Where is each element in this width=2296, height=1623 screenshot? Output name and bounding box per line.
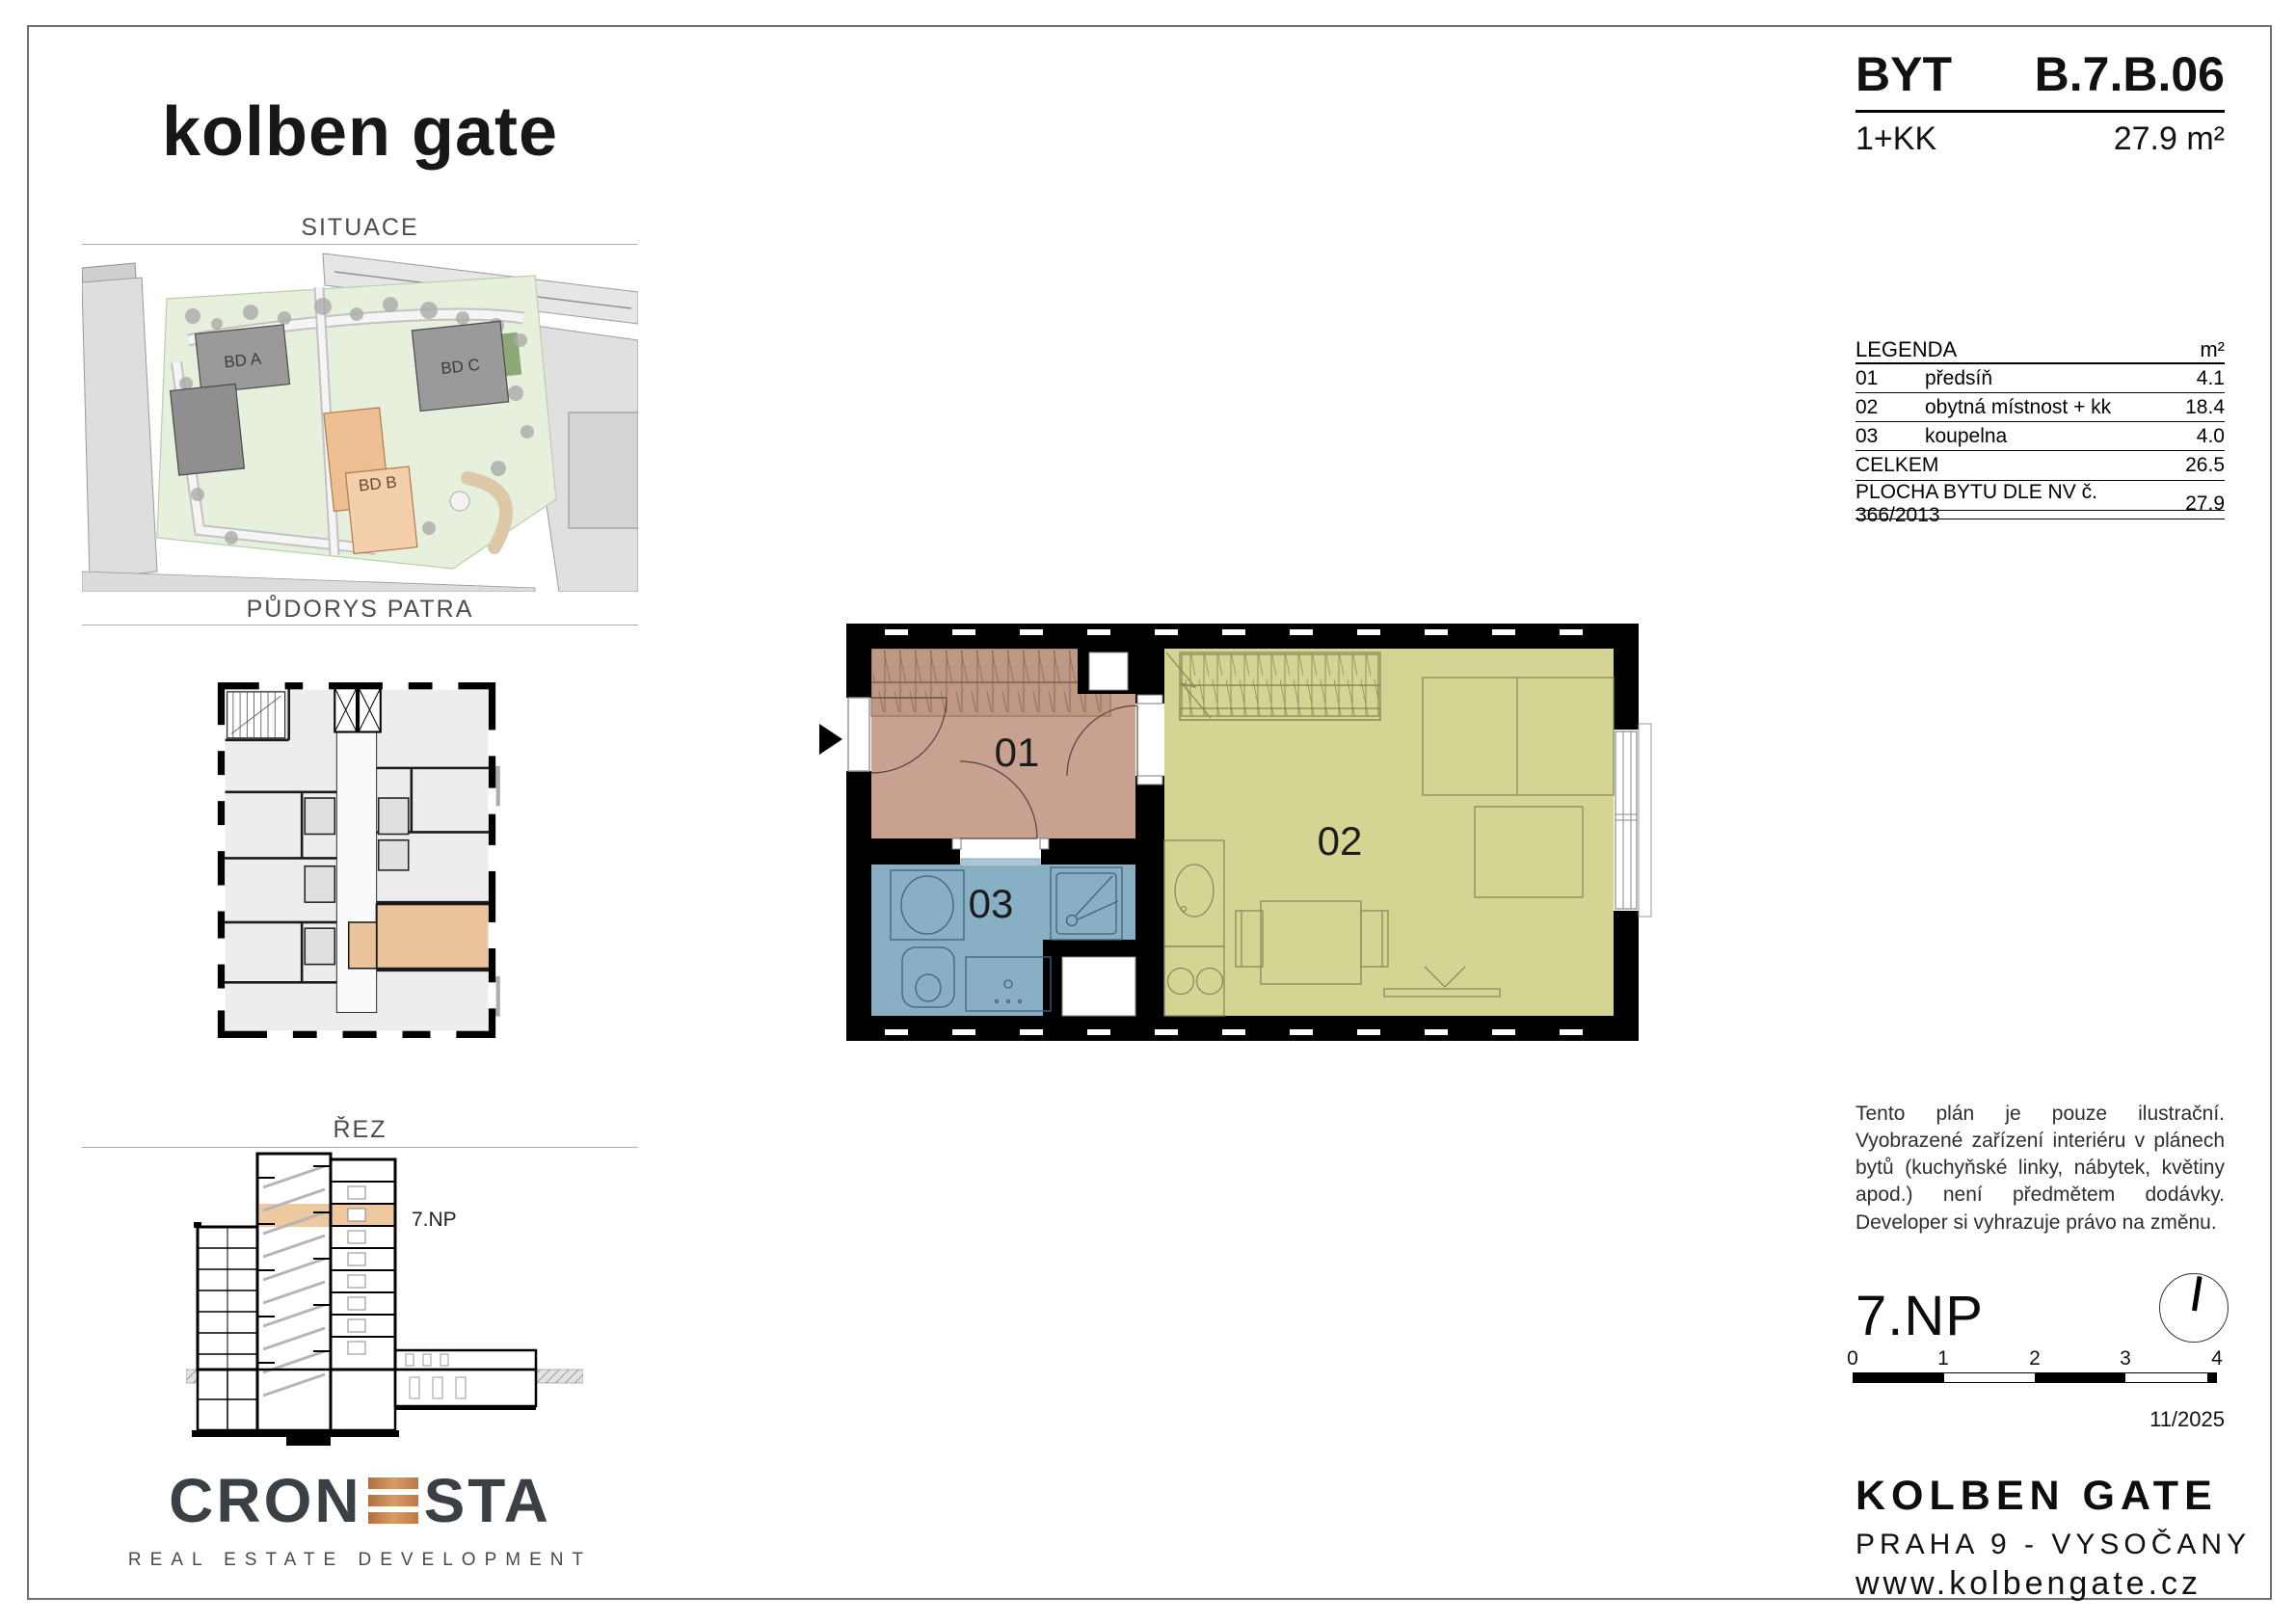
building-bd-a-annex [171, 384, 245, 475]
shaft-bathroom [1062, 957, 1135, 1016]
footer-location: PRAHA 9 - VYSOČANY [1855, 1529, 2225, 1561]
legend-table: LEGENDA m² 01 předsíň 4.1 02 obytná míst… [1855, 333, 2225, 519]
window-right [1615, 724, 1651, 917]
legend-statutory-area: 27.9 [2185, 492, 2225, 516]
scale-bar-numbers: 0 1 2 3 4 [1853, 1347, 2217, 1370]
entrance-arrow-icon [819, 724, 842, 755]
scale-tick: 1 [1937, 1347, 1949, 1370]
scale-tick: 2 [2029, 1347, 2041, 1370]
section-stairs-zigzag [263, 1166, 325, 1396]
legend-total-label: CELKEM [1855, 454, 2185, 477]
compass-needle [2192, 1276, 2203, 1311]
legend-total-area: 26.5 [2185, 454, 2225, 477]
section-annex [395, 1350, 536, 1370]
rez-title: ŘEZ [82, 1116, 638, 1144]
title-row: BYT B.7.B.06 [1855, 46, 2225, 113]
site-pool [450, 492, 469, 511]
site-plan-drawing: BD A BD C BD B [82, 249, 638, 592]
unit-area: 27.9 m² [2114, 120, 2225, 158]
apartment-plan-drawing: 01 02 03 [814, 622, 1671, 1042]
cronesta-text-left: CRON [169, 1465, 361, 1536]
legend-header: LEGENDA m² [1855, 333, 2225, 364]
legend-row-area: 4.1 [2197, 367, 2225, 390]
highlighted-unit-bath [349, 922, 377, 969]
byt-label: BYT [1855, 46, 1952, 102]
room-02-label: 02 [1318, 818, 1363, 864]
legend-statutory-label: PLOCHA BYTU DLE NV č. 366/2013 [1855, 481, 2185, 527]
cronesta-wordmark: CRON STA [82, 1465, 638, 1536]
window-sill [1639, 724, 1651, 917]
bathroom-threshold [961, 859, 1040, 866]
floor-elevators [334, 688, 381, 732]
legend-statutory-row: PLOCHA BYTU DLE NV č. 366/2013 27.9 [1855, 481, 2225, 511]
ground-right [536, 1370, 583, 1383]
shaft-top [1089, 652, 1128, 690]
footer-project-name: KOLBEN GATE [1855, 1473, 2225, 1520]
title-block: BYT B.7.B.06 1+KK 27.9 m² [1855, 46, 2225, 158]
legend-title: LEGENDA [1855, 337, 2200, 362]
section-lift-pit [286, 1437, 331, 1446]
footer-block: KOLBEN GATE PRAHA 9 - VYSOČANY www.kolbe… [1855, 1473, 2225, 1603]
situace-rule [82, 244, 638, 245]
section-drawing: 7.NP [186, 1151, 583, 1453]
cronesta-e-bars-icon [368, 1477, 418, 1524]
section-annex-slab [395, 1406, 536, 1410]
entrance-door-opening [848, 698, 869, 771]
floor-overview-drawing [207, 670, 506, 1051]
section-left-floors [198, 1227, 257, 1370]
pudorys-rule [82, 625, 638, 625]
legend-row-name: předsíň [1925, 367, 2197, 390]
legend-total-row: CELKEM 26.5 [1855, 451, 2225, 481]
legend-row-area: 4.0 [2197, 425, 2225, 448]
hallway-wardrobe [871, 649, 1110, 716]
scale-tick: 0 [1847, 1347, 1858, 1370]
cronesta-tagline: REAL ESTATE DEVELOPMENT [82, 1550, 638, 1571]
section-stair-landings [257, 1166, 331, 1363]
room-01-label: 01 [995, 730, 1040, 775]
plan-sheet: kolben gate SITUACE [0, 0, 2296, 1623]
living-closet [1166, 652, 1380, 720]
ground-left [186, 1370, 198, 1383]
scale-bar: 0 1 2 3 4 [1853, 1347, 2217, 1383]
disposition: 1+KK [1855, 120, 1936, 158]
legend-row-num: 01 [1855, 367, 1925, 390]
section-parapet [194, 1222, 201, 1228]
cronesta-logo: CRON STA REAL ESTATE DEVELOPMENT [82, 1465, 638, 1571]
disclaimer-text: Tento plán je pouze ilustrační. Vyobraze… [1855, 1101, 2225, 1237]
legend-row: 03 koupelna 4.0 [1855, 422, 2225, 451]
legend-row: 02 obytná místnost + kk 18.4 [1855, 393, 2225, 422]
legend-row-num: 03 [1855, 425, 1925, 448]
legend-row-num: 02 [1855, 396, 1925, 419]
cronesta-text-right: STA [424, 1465, 551, 1536]
section-annex-windows [406, 1354, 466, 1398]
unit-code: B.7.B.06 [2035, 46, 2225, 102]
scale-bar-segments [1853, 1372, 2217, 1383]
section-base-slab [192, 1430, 399, 1437]
section-highlight-floor [259, 1204, 395, 1227]
scale-tick: 3 [2120, 1347, 2131, 1370]
legend-row-name: koupelna [1925, 425, 2197, 448]
legend-unit: m² [2200, 337, 2225, 362]
legend-row-area: 18.4 [2185, 396, 2225, 419]
rez-rule [82, 1147, 638, 1148]
room-03-label: 03 [969, 881, 1014, 926]
issue-date: 11/2025 [1855, 1407, 2225, 1432]
legend-row-name: obytná místnost + kk [1925, 396, 2185, 419]
subtitle-row: 1+KK 27.9 m² [1855, 120, 2225, 158]
pudorys-title: PŮDORYS PATRA [82, 596, 638, 624]
highlighted-unit [377, 904, 493, 969]
kolben-gate-logo: kolben gate [82, 93, 638, 172]
section-floor-label: 7.NP [412, 1209, 457, 1231]
site-block-right [569, 412, 638, 528]
footer-website: www.kolbengate.cz [1855, 1565, 2225, 1603]
legend-row: 01 předsíň 4.1 [1855, 364, 2225, 393]
situace-title: SITUACE [82, 214, 638, 242]
scale-tick: 4 [2211, 1347, 2223, 1370]
north-compass-icon [2159, 1273, 2229, 1343]
